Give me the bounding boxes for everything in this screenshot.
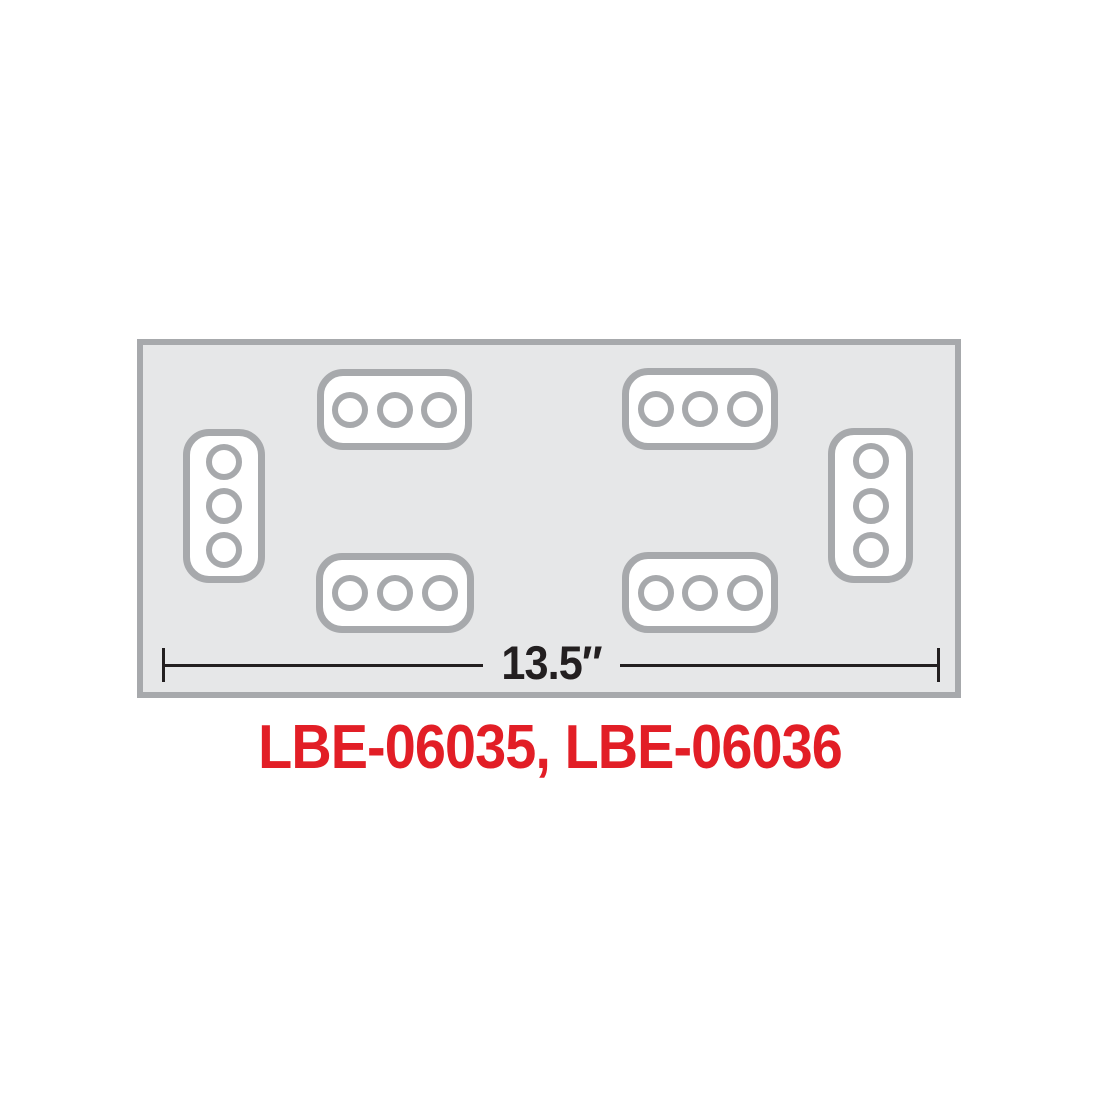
lamp-circle <box>727 391 763 427</box>
lamp-circle <box>206 488 242 524</box>
lamp-circle <box>206 532 242 568</box>
lamp-cluster-top-right <box>622 368 778 450</box>
lamp-circle <box>727 575 763 611</box>
diagram-canvas: 13.5″ LBE-06035, LBE-06036 <box>0 0 1100 1100</box>
lamp-circle <box>332 392 368 428</box>
lamp-circle <box>682 391 718 427</box>
lamp-circle <box>638 575 674 611</box>
lamp-cluster-right-edge <box>828 428 913 583</box>
dimension-segment <box>165 664 483 667</box>
lamp-circle <box>332 575 368 611</box>
lamp-circle <box>853 443 889 479</box>
dimension-label: 13.5″ <box>501 639 601 692</box>
lamp-cluster-top-left <box>317 369 472 450</box>
lamp-circle <box>638 391 674 427</box>
lamp-circle <box>682 575 718 611</box>
lamp-circle <box>206 444 242 480</box>
lamp-circle <box>377 575 413 611</box>
lamp-circle <box>853 488 889 524</box>
dimension-segment <box>620 664 938 667</box>
dimension-tick-right <box>937 648 940 682</box>
lamp-cluster-bottom-left <box>316 553 474 633</box>
lamp-circle <box>422 575 458 611</box>
lamp-circle <box>377 392 413 428</box>
part-numbers-label: LBE-06035, LBE-06036 <box>55 712 1045 783</box>
dimension-line: 13.5″ <box>162 647 940 683</box>
lamp-cluster-left-edge <box>183 429 265 583</box>
lamp-circle <box>421 392 457 428</box>
lamp-circle <box>853 532 889 568</box>
lamp-cluster-bottom-right <box>622 552 778 633</box>
